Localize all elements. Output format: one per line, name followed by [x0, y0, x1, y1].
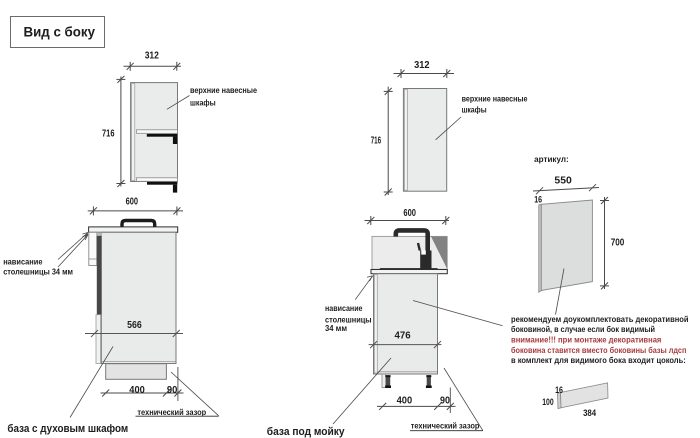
svg-text:90: 90: [440, 396, 450, 407]
svg-text:база под мойку: база под мойку: [267, 426, 346, 438]
svg-text:внимание!!! при монтаже декора: внимание!!! при монтаже декоративная: [511, 336, 662, 345]
svg-text:716: 716: [102, 127, 115, 139]
svg-text:34 мм: 34 мм: [325, 324, 347, 333]
svg-text:нависание: нависание: [325, 304, 363, 313]
svg-text:столешницы: столешницы: [325, 315, 372, 324]
svg-text:550: 550: [554, 175, 572, 186]
svg-text:400: 400: [397, 396, 413, 407]
svg-text:боковина ставится вместо боков: боковина ставится вместо боковины базы л…: [511, 346, 687, 355]
svg-text:верхние навесные: верхние навесные: [462, 95, 528, 104]
svg-text:рекомендуем доукомплектовать д: рекомендуем доукомплектовать декоративно…: [511, 315, 689, 324]
svg-text:384: 384: [583, 408, 596, 418]
svg-text:600: 600: [403, 207, 416, 219]
svg-text:312: 312: [414, 59, 430, 71]
svg-text:100: 100: [542, 397, 554, 407]
svg-text:в комплект для видимого бока в: в комплект для видимого бока входит цоко…: [511, 356, 686, 365]
svg-text:база с духовым шкафом: база с духовым шкафом: [7, 423, 128, 435]
svg-text:600: 600: [126, 196, 139, 208]
svg-text:566: 566: [127, 319, 142, 331]
svg-text:312: 312: [145, 49, 159, 61]
svg-text:нависание: нависание: [3, 257, 43, 266]
svg-text:700: 700: [611, 238, 625, 249]
svg-text:боковиной, в случае если бок в: боковиной, в случае если бок видимый: [511, 325, 655, 334]
svg-text:16: 16: [555, 385, 563, 395]
svg-text:артикул:: артикул:: [534, 155, 569, 164]
svg-text:400: 400: [129, 385, 145, 396]
svg-text:столешницы 34 мм: столешницы 34 мм: [3, 268, 73, 277]
svg-text:шкафы: шкафы: [190, 98, 216, 107]
svg-text:технический зазор: технический зазор: [411, 422, 480, 431]
svg-text:476: 476: [395, 329, 411, 341]
svg-text:шкафы: шкафы: [462, 105, 487, 114]
svg-text:716: 716: [371, 135, 381, 147]
svg-text:верхние навесные: верхние навесные: [190, 86, 257, 95]
svg-text:90: 90: [167, 385, 178, 396]
svg-text:16: 16: [534, 194, 542, 204]
svg-text:Вид с боку: Вид с боку: [24, 24, 96, 40]
